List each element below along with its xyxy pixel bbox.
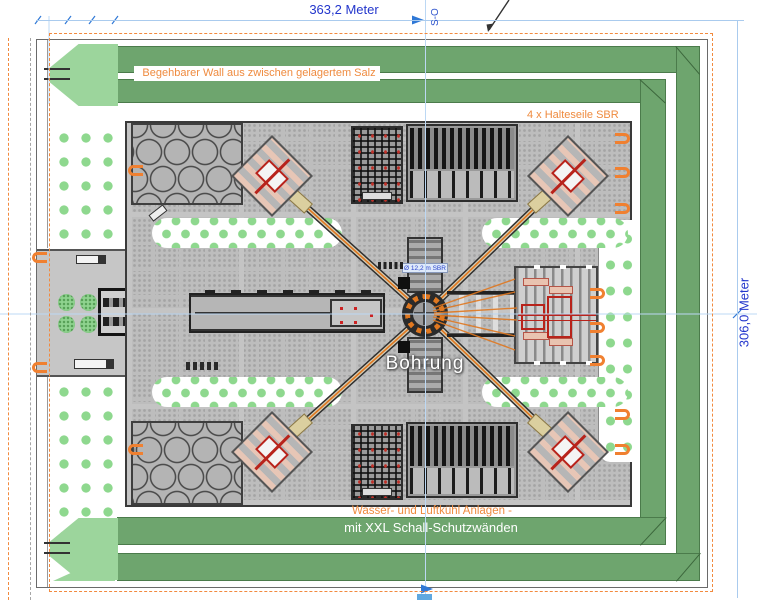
outer-dashed-line [8,38,9,600]
property-dashed-line [30,38,31,600]
dimension-label-height: 306,0 Meter [737,258,752,368]
dimension-label-width: 363,2 Meter [284,2,404,17]
setback-boundary-dashed [49,33,713,592]
site-plan-canvas: Ø 12,2 m SBR Begehbarer Wall aus zwische… [0,0,757,600]
section-line-label: S-O [430,0,441,26]
dimension-line-top [36,20,744,21]
section-marker-bottom [417,594,432,600]
